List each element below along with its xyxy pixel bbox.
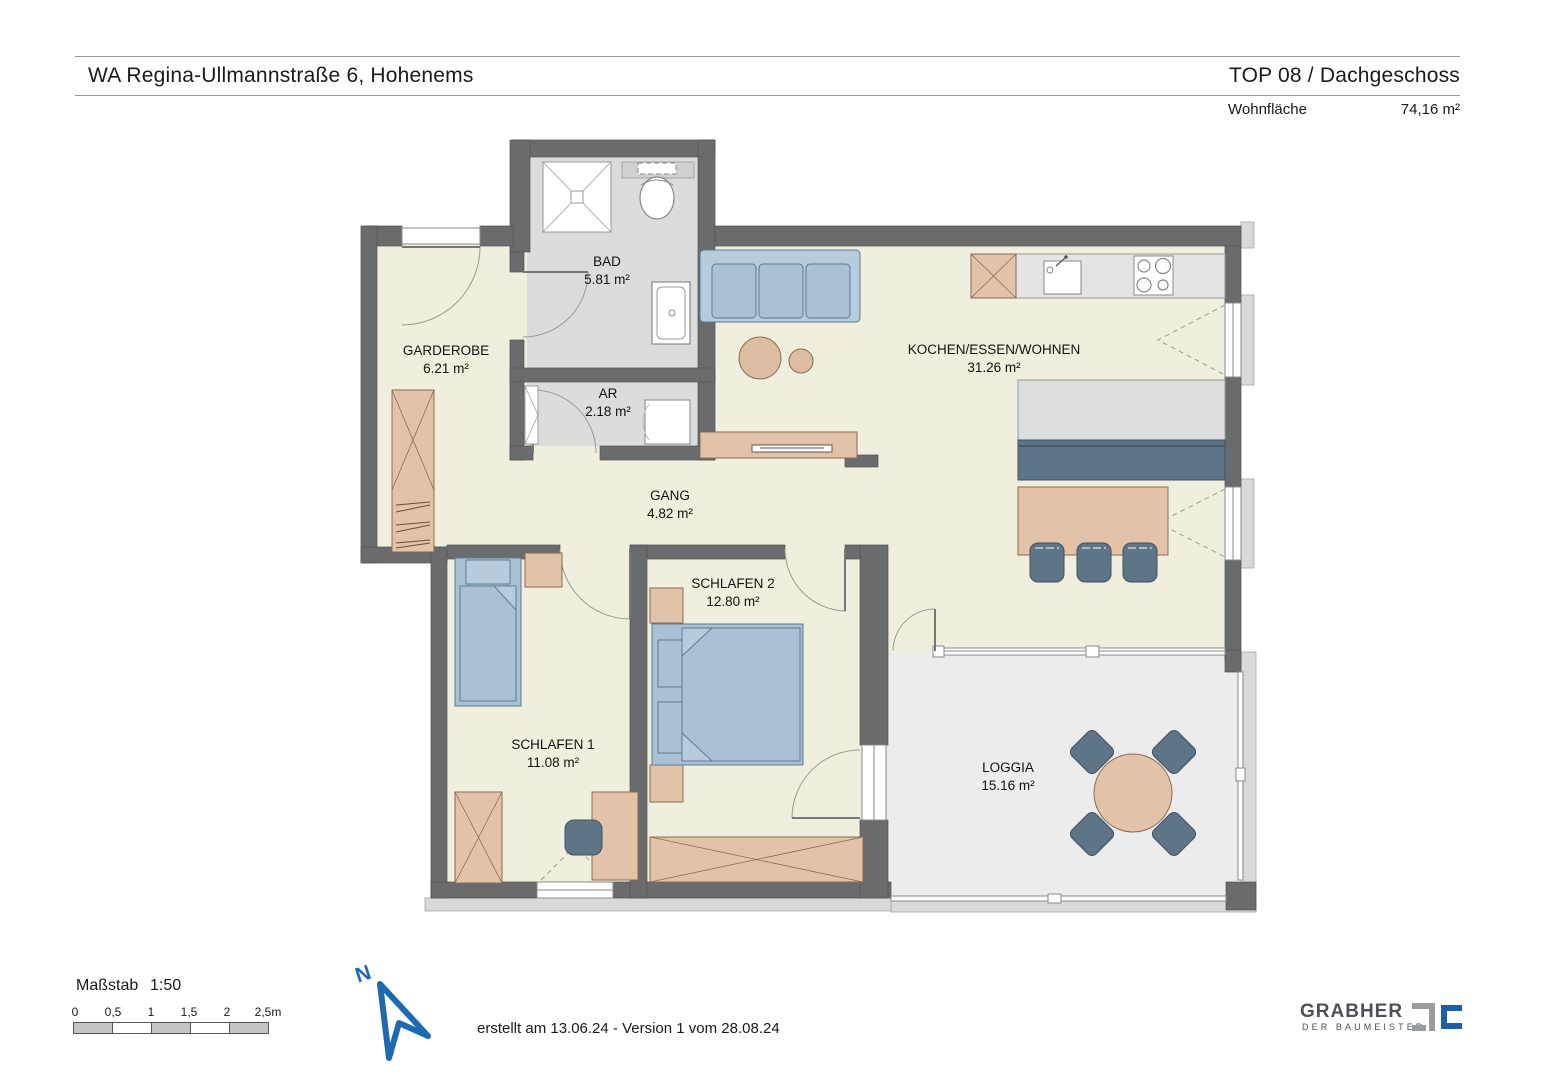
label-garderobe-area: 6.21 m² bbox=[423, 361, 469, 376]
dining-set bbox=[1018, 487, 1168, 582]
scale-tick-15: 1,5 bbox=[181, 1005, 198, 1019]
schlafen1-wardrobe bbox=[455, 792, 502, 883]
scale-tick-2: 2 bbox=[224, 1005, 231, 1019]
scale-bar-segment bbox=[191, 1023, 230, 1033]
scale-bar-segment bbox=[230, 1023, 268, 1033]
kitchen-island bbox=[1018, 380, 1225, 480]
scale-label: Maßstab bbox=[76, 977, 138, 995]
north-label: N bbox=[352, 961, 374, 988]
label-bad: BAD bbox=[593, 254, 621, 269]
kitchen-sink bbox=[1044, 255, 1081, 294]
kitchen-tall-unit bbox=[971, 254, 1016, 298]
scale-tick-25m: 2,5m bbox=[255, 1005, 282, 1019]
shower bbox=[543, 162, 611, 232]
label-schlafen2: SCHLAFEN 2 bbox=[691, 576, 774, 591]
logo-bracket-blue bbox=[1441, 1005, 1462, 1029]
washing-machine bbox=[643, 400, 690, 444]
floor-loggia bbox=[888, 652, 1238, 898]
nightstand bbox=[650, 588, 683, 623]
garderobe-wardrobe bbox=[392, 390, 434, 552]
label-schlafen2-area: 12.80 m² bbox=[706, 594, 760, 609]
scale-tick-05: 0,5 bbox=[105, 1005, 122, 1019]
double-bed bbox=[652, 624, 803, 765]
logo-tagline: DER BAUMEISTER bbox=[1302, 1022, 1425, 1032]
entrance-threshold bbox=[402, 228, 480, 244]
label-garderobe: GARDEROBE bbox=[403, 343, 489, 358]
dining-chair bbox=[1077, 543, 1111, 582]
scale-bar-segment bbox=[113, 1023, 152, 1033]
dining-chair bbox=[1123, 543, 1157, 582]
scale-tick-0: 0 bbox=[72, 1005, 79, 1019]
scale-tick-1: 1 bbox=[148, 1005, 155, 1019]
label-loggia-area: 15.16 m² bbox=[981, 778, 1035, 793]
desk-chair bbox=[565, 820, 602, 855]
label-ar: AR bbox=[599, 386, 618, 401]
label-schlafen1-area: 11.08 m² bbox=[527, 755, 580, 770]
floorplan-page: WA Regina-Ullmannstraße 6, Hohenems TOP … bbox=[0, 0, 1543, 1080]
label-bad-area: 5.81 m² bbox=[584, 272, 630, 287]
north-arrow: N bbox=[352, 961, 428, 1058]
kitchen-counter bbox=[971, 254, 1225, 298]
ar-shelf bbox=[525, 386, 538, 444]
tv-sideboard bbox=[700, 432, 857, 458]
north-arrow-icon bbox=[380, 984, 428, 1058]
bedside-box bbox=[525, 553, 562, 587]
single-bed bbox=[455, 558, 521, 706]
sofa bbox=[700, 250, 860, 322]
dining-chair bbox=[1030, 543, 1064, 582]
label-gang: GANG bbox=[650, 488, 690, 503]
floor-plan: BAD 5.81 m² GARDEROBE 6.21 m² AR 2.18 m²… bbox=[0, 0, 1543, 1080]
scale-bar bbox=[73, 1022, 269, 1034]
loggia-table bbox=[1094, 754, 1172, 832]
label-ar-area: 2.18 m² bbox=[585, 404, 631, 419]
label-schlafen1: SCHLAFEN 1 bbox=[511, 737, 594, 752]
scale-bar-segment bbox=[74, 1023, 113, 1033]
schlafen2-wardrobe bbox=[650, 837, 863, 882]
scale-ratio: 1:50 bbox=[150, 977, 181, 995]
label-wohnen-area: 31.26 m² bbox=[967, 360, 1021, 375]
nightstand bbox=[650, 765, 683, 802]
stove bbox=[1134, 256, 1173, 295]
logo-bracket-gray bbox=[1412, 1003, 1435, 1031]
label-wohnen: KOCHEN/ESSEN/WOHNEN bbox=[908, 342, 1081, 357]
scale-bar-segment bbox=[152, 1023, 191, 1033]
logo-name: GRABHER bbox=[1300, 1001, 1403, 1023]
created-note: erstellt am 13.06.24 - Version 1 vom 28.… bbox=[477, 1020, 780, 1037]
label-gang-area: 4.82 m² bbox=[647, 506, 693, 521]
washbasin bbox=[652, 282, 690, 344]
label-loggia: LOGGIA bbox=[982, 760, 1034, 775]
logo-mark bbox=[1410, 1001, 1466, 1033]
